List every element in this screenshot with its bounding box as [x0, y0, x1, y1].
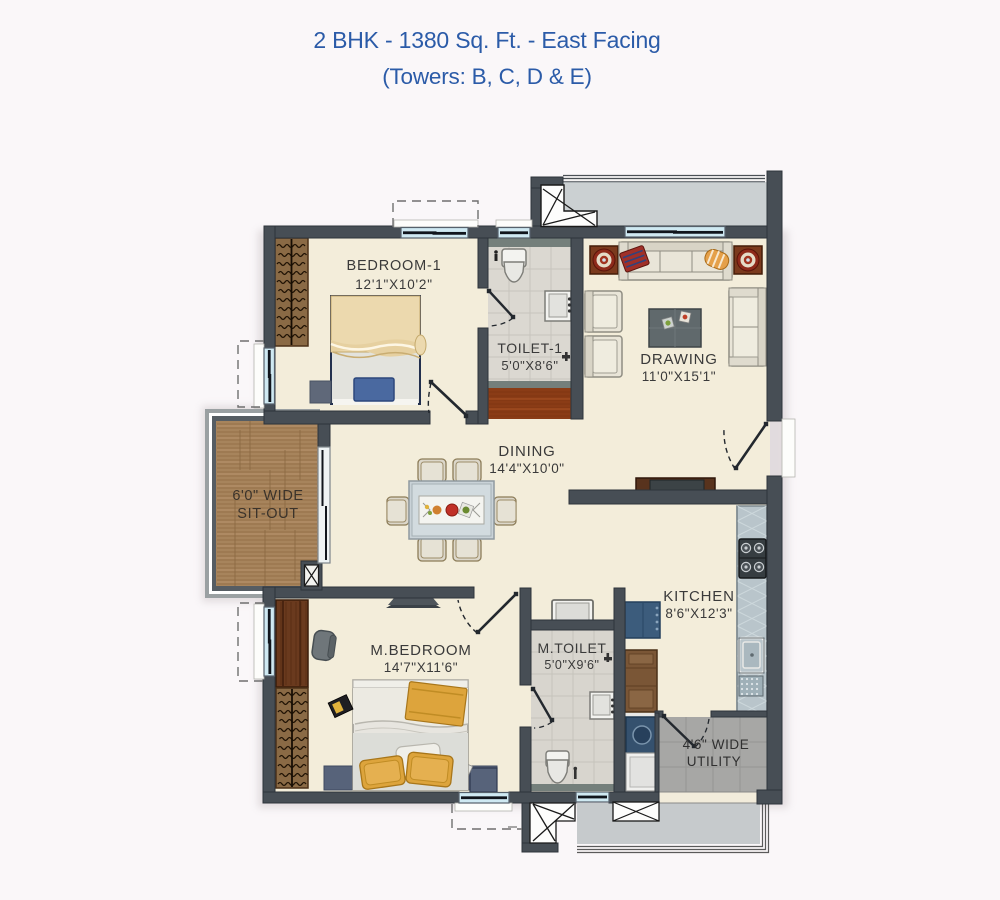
svg-text:11'0"X15'1": 11'0"X15'1" — [642, 369, 716, 384]
svg-text:M.BEDROOM: M.BEDROOM — [370, 642, 471, 659]
svg-text:TOILET-1: TOILET-1 — [497, 340, 562, 356]
svg-text:4'6" WIDE: 4'6" WIDE — [683, 737, 750, 752]
svg-text:2 BHK - 1380 Sq. Ft. - East Fa: 2 BHK - 1380 Sq. Ft. - East Facing — [313, 27, 660, 53]
svg-text:6'0" WIDE: 6'0" WIDE — [232, 488, 303, 504]
svg-text:UTILITY: UTILITY — [687, 754, 741, 769]
svg-text:DINING: DINING — [498, 443, 555, 460]
svg-text:12'1"X10'2": 12'1"X10'2" — [355, 277, 433, 292]
svg-text:5'0"X8'6": 5'0"X8'6" — [501, 358, 558, 373]
svg-text:5'0"X9'6": 5'0"X9'6" — [544, 658, 599, 672]
svg-text:BEDROOM-1: BEDROOM-1 — [346, 258, 441, 274]
svg-text:SIT-OUT: SIT-OUT — [237, 506, 298, 522]
svg-text:KITCHEN: KITCHEN — [663, 588, 734, 605]
svg-text:8'6"X12'3": 8'6"X12'3" — [665, 606, 732, 621]
svg-text:14'7"X11'6": 14'7"X11'6" — [384, 660, 458, 675]
svg-text:M.TOILET: M.TOILET — [537, 640, 606, 656]
svg-text:DRAWING: DRAWING — [640, 351, 718, 368]
svg-text:(Towers: B, C, D & E): (Towers: B, C, D & E) — [382, 64, 592, 89]
svg-text:14'4"X10'0": 14'4"X10'0" — [489, 461, 564, 476]
